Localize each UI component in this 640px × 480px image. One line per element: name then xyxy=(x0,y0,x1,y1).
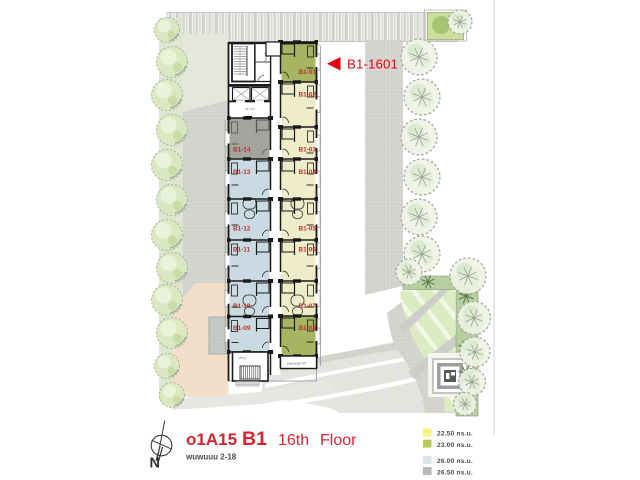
svg-text:B1-05: B1-05 xyxy=(299,226,317,233)
svg-text:B1-13: B1-13 xyxy=(233,169,251,176)
svg-text:B1-11: B1-11 xyxy=(233,247,250,254)
svg-text:Floor: Floor xyxy=(320,432,357,449)
svg-text:B1-03: B1-03 xyxy=(299,147,317,154)
svg-text:B1-01: B1-01 xyxy=(299,69,317,76)
svg-text:B1-04: B1-04 xyxy=(299,169,317,176)
svg-text:B1-10: B1-10 xyxy=(233,303,251,310)
svg-text:B1: B1 xyxy=(242,428,267,450)
svg-text:passenger lift: passenger lift xyxy=(287,362,306,366)
svg-text:B1-14: B1-14 xyxy=(233,147,251,154)
svg-text:B1-1601: B1-1601 xyxy=(347,57,398,72)
svg-text:B1-07: B1-07 xyxy=(299,303,317,310)
svg-text:wuwuuu 2-18: wuwuuu 2-18 xyxy=(185,453,237,462)
svg-text:B1-12: B1-12 xyxy=(233,226,251,233)
svg-text:B1-09: B1-09 xyxy=(233,325,251,332)
svg-text:lobby: lobby xyxy=(238,356,246,360)
svg-text:B1-02: B1-02 xyxy=(299,92,317,99)
svg-text:B1-08: B1-08 xyxy=(299,325,317,332)
svg-text:lift hall: lift hall xyxy=(245,107,255,111)
svg-text:N: N xyxy=(150,456,160,472)
svg-text:22.50 ns.u.: 22.50 ns.u. xyxy=(437,431,473,438)
svg-text:B1-06: B1-06 xyxy=(299,247,317,254)
svg-text:16th: 16th xyxy=(278,432,309,449)
svg-text:o1A15: o1A15 xyxy=(186,430,237,449)
svg-text:26.00 ns.u.: 26.00 ns.u. xyxy=(437,458,473,465)
svg-text:23.00 ns.u.: 23.00 ns.u. xyxy=(437,442,473,449)
svg-text:26.50 ns.u.: 26.50 ns.u. xyxy=(437,469,473,476)
